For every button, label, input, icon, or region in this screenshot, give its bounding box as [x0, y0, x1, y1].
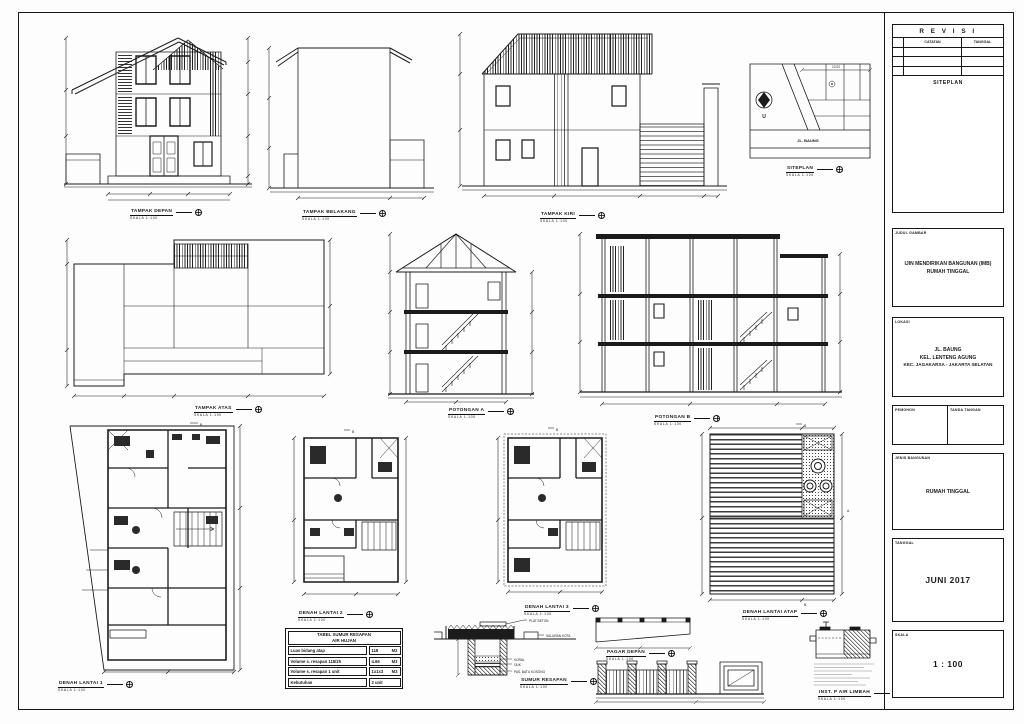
titleblock-jenis-bangunan: JENIS BANGUNAN RUMAH TINGGAL — [892, 453, 1004, 530]
skala-value: 1 : 100 — [933, 659, 963, 669]
view-title: SITEPLAN — [786, 166, 814, 173]
field-label: LOKASI — [895, 320, 910, 324]
detail-bubble-icon — [255, 406, 262, 413]
view-siteplan: 12.00 JL. BAUNG U SITEPLAN SKALA 1:100 — [742, 60, 877, 185]
view-potongan-b: POTONGAN B SKALA 1:100 — [572, 224, 850, 426]
revisi-title: R E V I S I — [893, 25, 1003, 38]
annex-roof-slab — [780, 254, 828, 258]
revisi-cell — [904, 57, 962, 67]
view-label-pagar-depan: PAGAR DEPAN SKALA 1:100 — [606, 650, 675, 661]
view-label-tampak-atas: TAMPAK ATAS SKALA 1:100 — [194, 406, 262, 417]
view-title: POTONGAN B — [654, 415, 691, 422]
view-title: DENAH LANTAI 3 — [524, 605, 570, 612]
drawing-sheet: TAMPAK DEPAN SKALA 1:100 TAMPAK BELAKANG… — [0, 0, 1024, 724]
furniture — [310, 446, 392, 536]
view-title: TAMPAK BELAKANG — [302, 210, 357, 217]
revisi-cell — [893, 38, 904, 48]
dimension-lines — [267, 46, 426, 200]
view-scale: SKALA 1:100 — [520, 685, 568, 689]
lokasi-line3: KEC. JAGAKARSA - JAKARTA SELATAN — [904, 362, 993, 367]
label-tail — [571, 681, 587, 682]
dimension-lines — [700, 424, 844, 602]
label-tail — [107, 684, 123, 685]
section-marker: A — [847, 509, 850, 513]
view-denah-lantai-3: B DENAH LANTAI 3 SKALA 1:100 — [490, 424, 622, 616]
view-denah-lantai-1: B DENAH LANTAI 1 SKALA 1:100 — [56, 420, 248, 698]
view-title: SUMUR RESAPAN — [520, 678, 568, 685]
north-arrow-icon — [758, 92, 770, 108]
view-title: POTONGAN A — [448, 408, 485, 415]
view-label-sumur-resapan: SUMUR RESAPAN SKALA 1:100 — [520, 678, 597, 689]
north-label: U — [762, 114, 766, 120]
view-label-denah-lantai-1: DENAH LANTAI 1 SKALA 1:100 — [58, 681, 133, 692]
revisi-col-tanggal: TANGGAL — [962, 38, 1003, 48]
label-tail — [817, 169, 833, 170]
detail-bubble-icon — [507, 408, 514, 415]
view-scale: SKALA 1:100 — [58, 688, 104, 692]
view-inst-air-limbah: INST. P AIR LIMBAH SKALA 1:100 — [806, 616, 886, 712]
view-pagar-depan: PAGAR DEPAN SKALA 1:100 — [588, 612, 774, 710]
judul-line1: IJIN MENDIRIKAN BANGUNAN (IMB) — [905, 261, 992, 267]
table-row: Luas bidang atap 118M2 — [288, 646, 401, 655]
view-label-tampak-depan: TAMPAK DEPAN SKALA 1:100 — [130, 209, 202, 220]
annotation-text-lines — [814, 664, 874, 685]
label-tail — [573, 608, 589, 609]
annotation-saluran: SALURAN KOTA — [546, 634, 571, 638]
resapan-table-title: TABEL SUMUR RESAPAN AIR HUJAN — [288, 631, 401, 645]
denah-lantai-2-drawing: B — [286, 424, 418, 608]
tampak-belakang-drawing — [262, 28, 442, 206]
label-tail — [874, 693, 890, 694]
view-label-tampak-kiri: TAMPAK KIRI SKALA 1:100 — [540, 212, 605, 223]
resapan-table: TABEL SUMUR RESAPAN AIR HUJAN Luas bidan… — [285, 628, 403, 689]
view-scale: SKALA 1:100 — [302, 217, 357, 221]
potongan-b-drawing — [572, 224, 850, 412]
dimension-lines — [578, 232, 842, 406]
label-tail — [694, 418, 710, 419]
revisi-cell — [904, 67, 962, 77]
revisi-cell — [962, 67, 1003, 77]
furniture — [514, 446, 596, 572]
view-tampak-belakang: TAMPAK BELAKANG SKALA 1:100 — [262, 28, 442, 220]
detail-bubble-icon — [126, 681, 133, 688]
detail-bubble-icon — [836, 166, 843, 173]
row-unit: M3 — [392, 659, 398, 664]
view-title: DENAH LANTAI 2 — [298, 611, 344, 618]
revisi-cell — [962, 57, 1003, 67]
titleblock-skala: SKALA 1 : 100 — [892, 630, 1004, 698]
tampak-kiri-drawing — [452, 26, 737, 208]
annotation-plat-beton: PLAT BETON — [529, 619, 549, 623]
field-label: PEMOHON — [895, 408, 915, 412]
section-marker: B — [352, 430, 355, 434]
view-title: TAMPAK KIRI — [540, 212, 576, 219]
row-unit: M3 — [392, 669, 398, 674]
view-label-siteplan: SITEPLAN SKALA 1:100 — [786, 166, 843, 177]
view-tampak-atas: TAMPAK ATAS SKALA 1:100 — [62, 228, 337, 420]
lokasi-line1: JL. BAUNG — [935, 347, 962, 353]
section-marker: B — [804, 603, 807, 607]
dimension-lines — [496, 428, 604, 594]
dimension-lines — [292, 430, 408, 596]
field-label: JUDUL GAMBAR — [895, 231, 926, 235]
label-tail — [801, 613, 817, 614]
view-scale: SKALA 1:100 — [654, 422, 691, 426]
siteplan-dim-label: 12.00 — [832, 65, 840, 69]
floor-slab — [404, 310, 508, 314]
detail-bubble-icon — [598, 212, 605, 219]
label-tail — [579, 215, 595, 216]
revisi-table: CATATAN TANGGAL — [893, 38, 1003, 76]
view-scale: SKALA 1:100 — [606, 657, 646, 661]
revisi-cell — [962, 48, 1003, 58]
detail-bubble-icon — [668, 650, 675, 657]
annotation-pas-batu: PAS. BATU KOSONG — [514, 670, 546, 674]
tampak-atas-drawing — [62, 228, 337, 404]
table-row: Kebutuhan 2 unit — [288, 678, 401, 687]
titleblock-pemohon: PEMOHON TANDA TANGAN — [892, 405, 1004, 445]
view-label-potongan-a: POTONGAN A SKALA 1:100 — [448, 408, 514, 419]
field-label: TANDA TANGAN — [950, 408, 981, 412]
potongan-a-drawing — [382, 226, 540, 406]
detail-bubble-icon — [366, 611, 373, 618]
tanggal-value: JUNI 2017 — [925, 575, 970, 585]
view-tampak-depan: TAMPAK DEPAN SKALA 1:100 — [58, 24, 258, 220]
roof-slab — [596, 234, 780, 239]
table-row: Volume s. resapan 118/25 4.66M3 — [288, 657, 401, 666]
dimension-lines — [800, 68, 872, 87]
view-label-denah-lantai-2: DENAH LANTAI 2 SKALA 1:100 — [298, 611, 373, 622]
judul-line2: RUMAH TINGGAL — [927, 269, 970, 275]
field-label: JENIS BANGUNAN — [895, 456, 930, 460]
view-tampak-kiri: TAMPAK KIRI SKALA 1:100 — [452, 26, 737, 222]
view-denah-lantai-2: B DENAH LANTAI 2 SKALA 1:100 — [286, 424, 418, 624]
view-label-inst-air-limbah: INST. P AIR LIMBAH SKALA 1:100 — [818, 690, 900, 701]
tampak-depan-drawing — [58, 24, 258, 206]
field-label: TANGGAL — [895, 541, 914, 545]
label-tail — [347, 614, 363, 615]
revisi-cell — [893, 48, 904, 58]
section-marker: B — [804, 424, 807, 428]
jenis-value: RUMAH TINGGAL — [926, 489, 970, 495]
view-scale: SKALA 1:100 — [818, 697, 871, 701]
row-value: 4.66 — [372, 659, 380, 664]
table-title-line2: AIR HUJAN — [289, 638, 400, 644]
view-scale: SKALA 1:100 — [130, 216, 173, 220]
view-scale: SKALA 1:100 — [786, 173, 814, 177]
label-tail — [488, 411, 504, 412]
field-label: SKALA — [895, 633, 908, 637]
floor-slab — [598, 342, 828, 346]
titleblock-judul-gambar: JUDUL GAMBAR IJIN MENDIRIKAN BANGUNAN (I… — [892, 228, 1004, 307]
row-label: Volume s. resapan 1 unit — [288, 667, 368, 676]
revisi-col-catatan: CATATAN — [904, 38, 962, 48]
row-value: 2 unit — [372, 680, 383, 685]
row-value: 118 — [372, 648, 379, 653]
view-title: DENAH LANTAI 1 — [58, 681, 104, 688]
row-label: Luas bidang atap — [288, 646, 368, 655]
row-label: Volume s. resapan 118/25 — [288, 657, 368, 666]
view-label-tampak-belakang: TAMPAK BELAKANG SKALA 1:100 — [302, 210, 386, 221]
view-potongan-a: POTONGAN A SKALA 1:100 — [382, 226, 540, 422]
label-tail — [176, 212, 192, 213]
titleblock-tanggal: TANGGAL JUNI 2017 — [892, 538, 1004, 622]
denah-lantai-atap-drawing: B A B — [696, 422, 854, 606]
lokasi-line2: KEL. LENTENG AGUNG — [920, 355, 976, 361]
row-label: Kebutuhan — [288, 678, 368, 687]
view-scale: SKALA 1:100 — [194, 413, 233, 417]
view-scale: SKALA 1:100 — [540, 219, 576, 223]
view-scale: SKALA 1:100 — [448, 415, 485, 419]
siteplan-drawing: 12.00 JL. BAUNG U — [742, 60, 877, 162]
street-label: JL. BAUNG — [797, 138, 819, 143]
detail-bubble-icon — [592, 605, 599, 612]
detail-bubble-icon — [379, 210, 386, 217]
row-unit: M2 — [392, 648, 398, 653]
titleblock-siteplan-label: SITEPLAN — [893, 80, 1003, 86]
titleblock-divider — [884, 12, 885, 710]
annotation-ijuk: IJUK — [514, 663, 522, 667]
label-tail — [236, 409, 252, 410]
revisi-cell — [893, 67, 904, 77]
denah-lantai-3-drawing: B — [490, 424, 622, 602]
detail-bubble-icon — [713, 415, 720, 422]
view-sumur-resapan: PLAT BETON SALURAN KOTA KORAL IJUK PAS. … — [428, 616, 580, 712]
detail-bubble-icon — [195, 209, 202, 216]
table-row: Volume s. resapan 1 unit 1x1x3M3 — [288, 667, 401, 676]
floor-slab — [404, 350, 508, 354]
view-denah-lantai-atap: B A B DENAH LANTAI ATAP SKALA 1:100 — [696, 422, 854, 622]
floor-slab — [598, 294, 828, 298]
view-title: PAGAR DEPAN — [606, 650, 646, 657]
label-tail — [649, 653, 665, 654]
view-title: INST. P AIR LIMBAH — [818, 690, 871, 697]
view-scale: SKALA 1:100 — [298, 618, 344, 622]
furniture — [114, 434, 220, 574]
annotation-koral: KORAL — [514, 658, 525, 662]
label-tail — [360, 213, 376, 214]
view-title: TAMPAK ATAS — [194, 406, 233, 413]
revisi-cell — [904, 48, 962, 58]
titleblock-lokasi: LOKASI JL. BAUNG KEL. LENTENG AGUNG KEC.… — [892, 317, 1004, 397]
denah-lantai-1-drawing: B — [56, 420, 248, 678]
titleblock-revisi: R E V I S I CATATAN TANGGAL SITEPLAN — [892, 24, 1004, 213]
row-value: 1x1x3 — [372, 669, 384, 674]
section-marker: B — [556, 428, 559, 432]
sumur-resapan-drawing: PLAT BETON SALURAN KOTA KORAL IJUK PAS. … — [428, 616, 580, 708]
view-title: TAMPAK DEPAN — [130, 209, 173, 216]
revisi-cell — [893, 57, 904, 67]
